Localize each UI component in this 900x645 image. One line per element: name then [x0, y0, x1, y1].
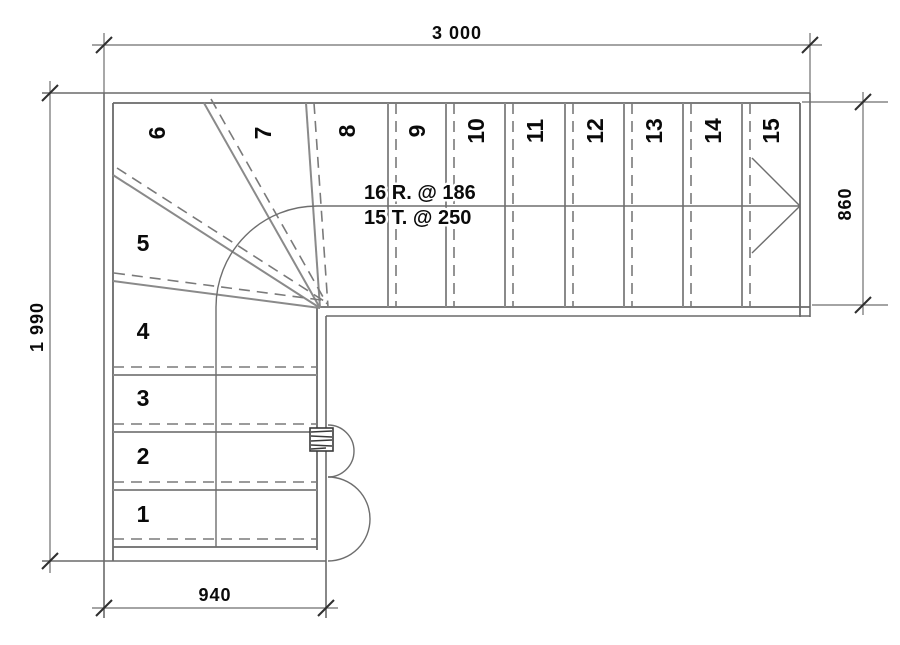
- dimension-top-value: 3 000: [432, 23, 482, 43]
- step-label-15: 15: [758, 118, 784, 144]
- step-label-6: 6: [144, 127, 170, 140]
- step-labels: 1 2 3 4 5 6 7 8 9 10 11 12 13 14 15: [137, 118, 784, 527]
- step-label-10: 10: [463, 118, 489, 144]
- newel-post: [310, 428, 333, 451]
- step-label-13: 13: [641, 118, 667, 144]
- dimension-right: 860: [802, 92, 888, 315]
- step-label-4: 4: [137, 318, 150, 344]
- step-label-5: 5: [137, 230, 150, 256]
- dimension-left: 1 990: [27, 81, 58, 573]
- dimension-right-value: 860: [835, 187, 855, 220]
- dimension-top: 3 000: [92, 23, 822, 93]
- step-label-9: 9: [404, 125, 430, 138]
- dimension-bottom: 940: [92, 585, 338, 616]
- walkline: [216, 158, 800, 547]
- dimension-left-value: 1 990: [27, 302, 47, 352]
- upper-flight-riser-lines: [388, 103, 742, 307]
- step-label-12: 12: [582, 118, 608, 144]
- step-label-7: 7: [250, 127, 276, 140]
- stair-plan-drawing: 3 000 1 990 860 940 1 2 3 4 5 6 7 8 9 10…: [0, 0, 900, 645]
- step-label-14: 14: [700, 118, 726, 144]
- step-label-1: 1: [137, 501, 150, 527]
- riser-count-note: 16 R. @ 186: [364, 182, 476, 204]
- step-label-11: 11: [522, 119, 548, 144]
- step-label-2: 2: [137, 443, 150, 469]
- upper-flight-nosing-lines: [396, 103, 750, 307]
- stair-plan-canvas: 3 000 1 990 860 940 1 2 3 4 5 6 7 8 9 10…: [0, 0, 900, 645]
- step-label-3: 3: [137, 385, 150, 411]
- door-swing-arcs: [328, 425, 370, 561]
- tread-count-note: 15 T. @ 250: [364, 207, 471, 229]
- step-label-8: 8: [334, 124, 360, 137]
- dimension-bottom-value: 940: [198, 585, 231, 605]
